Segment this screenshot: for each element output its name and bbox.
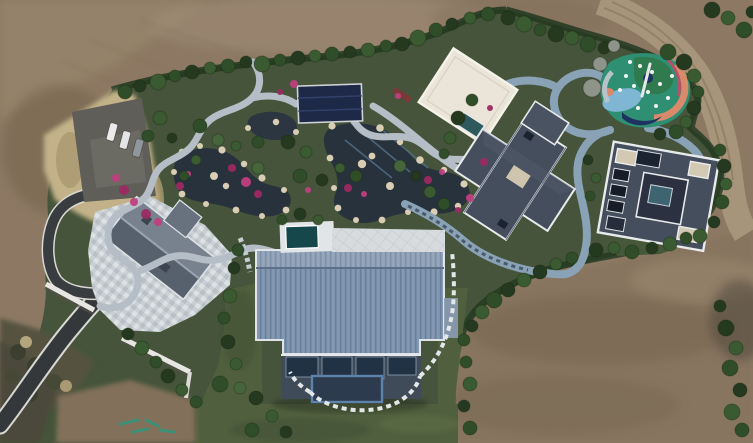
- tree: [221, 335, 235, 349]
- facade-window: [388, 357, 416, 375]
- east-villa-corner-terrace: [615, 148, 637, 165]
- tree: [729, 341, 743, 355]
- tree: [580, 36, 596, 52]
- play-equipment-dot: [650, 70, 654, 74]
- tree: [179, 171, 189, 181]
- tree: [458, 334, 470, 346]
- play-equipment-dot: [632, 84, 636, 88]
- flower-bed: [112, 174, 120, 182]
- tree: [680, 232, 692, 244]
- tree: [692, 86, 704, 98]
- tree: [501, 11, 515, 25]
- flower-bed: [424, 176, 432, 184]
- tree: [161, 369, 175, 383]
- play-equipment-dot: [624, 74, 628, 78]
- east-villa-skylight: [606, 216, 626, 232]
- tree: [281, 135, 295, 149]
- navy-pavilion-roof: [297, 84, 362, 123]
- tree: [394, 160, 406, 172]
- flower-bed: [176, 182, 184, 190]
- play-equipment-dot: [618, 88, 622, 92]
- tree: [361, 43, 375, 57]
- tree: [548, 26, 564, 42]
- play-equipment-dot: [658, 82, 662, 86]
- tree: [718, 320, 734, 336]
- tree: [463, 377, 477, 391]
- tree: [223, 289, 237, 303]
- tree: [565, 31, 579, 45]
- navy-pavilion: [297, 84, 362, 123]
- tree: [593, 57, 607, 71]
- tree: [715, 195, 729, 209]
- tree: [501, 283, 515, 297]
- tree: [252, 162, 264, 174]
- tree: [439, 149, 449, 159]
- flower-bed: [154, 218, 162, 226]
- flower-bed: [254, 190, 262, 198]
- tree: [663, 237, 677, 251]
- play-equipment-dot: [638, 64, 642, 68]
- tree: [191, 155, 201, 165]
- tree: [316, 174, 328, 186]
- east-villa-solar-panel: [612, 168, 630, 182]
- tree: [254, 56, 270, 72]
- tree: [714, 144, 726, 156]
- tree: [746, 6, 753, 18]
- tree: [380, 40, 392, 52]
- tree: [660, 44, 676, 60]
- flower-bed: [141, 209, 151, 219]
- tree: [135, 341, 149, 355]
- tree: [704, 2, 720, 18]
- play-equipment-dot: [654, 104, 658, 108]
- tree: [134, 80, 146, 92]
- tree: [464, 12, 476, 24]
- flower-bed: [344, 184, 352, 192]
- flower-bed: [466, 194, 474, 202]
- dry-bush: [60, 380, 72, 392]
- tree: [721, 11, 735, 25]
- play-equipment-dot: [628, 60, 632, 64]
- tree: [300, 146, 312, 158]
- tree: [429, 23, 443, 37]
- tree: [550, 258, 562, 270]
- flower-bed: [395, 93, 401, 99]
- tree: [411, 171, 421, 181]
- east-villa-atrium-glass: [648, 185, 673, 207]
- tree: [218, 312, 230, 324]
- tree: [309, 50, 321, 62]
- flower-bed: [130, 198, 138, 206]
- tree: [266, 410, 278, 422]
- tree: [589, 243, 603, 257]
- tree: [608, 242, 620, 254]
- tree: [583, 79, 601, 97]
- tree: [277, 215, 287, 225]
- flower-bed: [119, 185, 129, 195]
- flower-bed: [241, 177, 251, 187]
- flower-bed: [290, 80, 298, 88]
- flower-bed: [277, 89, 283, 95]
- lawn-light: [380, 415, 460, 433]
- tree: [185, 65, 199, 79]
- tree: [212, 376, 228, 392]
- tree: [293, 169, 307, 183]
- tree: [566, 252, 578, 264]
- tree: [458, 400, 470, 412]
- tree: [118, 85, 132, 99]
- tree: [735, 423, 749, 437]
- tree: [463, 421, 477, 435]
- tree: [583, 155, 593, 165]
- flower-bed: [361, 191, 367, 197]
- tree: [344, 46, 356, 58]
- flower-bed: [305, 187, 311, 193]
- tree: [517, 273, 531, 287]
- photo-canvas: ): [0, 0, 753, 443]
- tree: [249, 391, 263, 405]
- tree: [424, 186, 436, 198]
- dry-bush: [20, 336, 32, 348]
- tree: [169, 70, 181, 82]
- tree: [240, 56, 252, 68]
- tree: [234, 382, 246, 394]
- tree: [608, 40, 620, 52]
- play-equipment-dot: [646, 90, 650, 94]
- tree: [280, 426, 292, 438]
- dirt-streak: [470, 295, 730, 365]
- tree: [466, 94, 478, 106]
- flower-bed: [480, 158, 488, 166]
- tree: [274, 54, 286, 66]
- tree: [717, 159, 731, 173]
- scrub-bush: [46, 374, 62, 390]
- tree: [335, 163, 345, 173]
- tree: [395, 37, 409, 51]
- flower-bed: [439, 169, 445, 175]
- east-villa-solar-panel: [607, 200, 625, 214]
- tree: [724, 404, 740, 420]
- facade-window: [286, 357, 318, 377]
- east-villa-corner-terrace: [688, 161, 710, 178]
- tree: [438, 198, 450, 210]
- tree: [533, 265, 547, 279]
- tree: [193, 119, 207, 133]
- tree: [245, 423, 259, 437]
- tree: [534, 24, 546, 36]
- tree: [150, 74, 166, 90]
- tree: [153, 111, 167, 125]
- tree: [646, 242, 658, 254]
- tree: [585, 191, 595, 201]
- tree: [221, 59, 235, 73]
- tree: [444, 132, 456, 144]
- tree: [446, 18, 458, 30]
- play-equipment-dot: [636, 106, 640, 110]
- scrub-bush: [5, 369, 19, 383]
- tree: [486, 292, 502, 308]
- tree: [676, 54, 692, 70]
- tree: [176, 384, 188, 396]
- tree: [291, 51, 305, 65]
- tree: [230, 358, 242, 370]
- tree: [687, 101, 701, 115]
- tree: [481, 7, 495, 21]
- spa-deck: [279, 221, 334, 253]
- tree: [687, 69, 701, 83]
- north-terrace-paving: [332, 228, 445, 252]
- tree: [167, 133, 177, 143]
- tree: [733, 383, 747, 397]
- aerial-estate-photo: ): [0, 0, 753, 443]
- tree: [122, 328, 134, 340]
- tree: [625, 245, 639, 259]
- tree: [475, 305, 489, 319]
- play-equipment-dot: [666, 96, 670, 100]
- tree: [204, 62, 216, 74]
- tree: [708, 216, 720, 228]
- tree: [460, 356, 472, 368]
- tree: [654, 128, 666, 140]
- tree: [693, 229, 707, 243]
- east-villa-solar-panel: [609, 184, 627, 198]
- tree: [313, 215, 323, 225]
- tree: [736, 22, 752, 38]
- tree: [720, 178, 732, 190]
- tree: [228, 262, 240, 274]
- tree: [714, 300, 726, 312]
- tree: [516, 16, 532, 32]
- tree: [669, 125, 683, 139]
- play-equipment-dot: [670, 74, 674, 78]
- tree: [680, 116, 692, 128]
- tree: [150, 356, 162, 368]
- tree: [466, 320, 478, 332]
- tree: [212, 134, 224, 146]
- tree: [232, 244, 244, 256]
- spa-pool: [286, 226, 319, 249]
- tree: [410, 30, 426, 46]
- tree: [350, 170, 362, 182]
- tree: [325, 47, 339, 61]
- facade-glass-wall: [312, 376, 382, 402]
- tree: [231, 141, 241, 151]
- tree: [451, 111, 465, 125]
- flower-bed: [455, 207, 461, 213]
- tree: [252, 136, 264, 148]
- flower-bed: [487, 105, 493, 111]
- tree: [190, 396, 202, 408]
- flower-bed: [228, 164, 236, 172]
- tree: [142, 130, 154, 142]
- tree: [591, 173, 601, 183]
- tree: [722, 360, 738, 376]
- tree: [294, 208, 306, 220]
